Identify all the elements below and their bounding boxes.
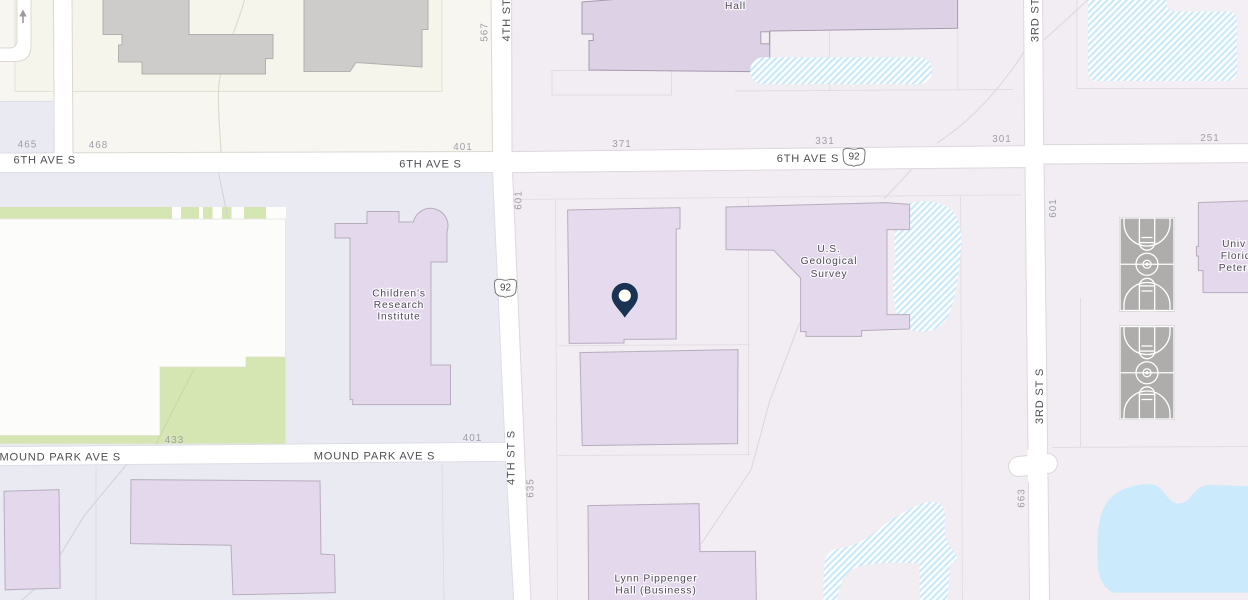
svg-text:U.S.: U.S. (817, 244, 840, 255)
svg-text:3RD ST S: 3RD ST S (1030, 0, 1042, 42)
svg-text:Children’s: Children’s (372, 289, 426, 300)
svg-text:663: 663 (1017, 488, 1028, 507)
svg-text:433: 433 (165, 435, 184, 446)
svg-text:92: 92 (500, 283, 512, 294)
svg-text:331: 331 (815, 136, 834, 147)
svg-text:92: 92 (848, 152, 860, 163)
svg-text:567: 567 (480, 22, 491, 41)
svg-text:4TH ST S: 4TH ST S (501, 0, 513, 41)
svg-text:635: 635 (526, 478, 537, 497)
svg-text:601: 601 (1048, 198, 1059, 217)
svg-text:6TH AVE S: 6TH AVE S (399, 158, 461, 170)
svg-text:Univ: Univ (1222, 239, 1246, 250)
svg-text:301: 301 (992, 134, 1011, 145)
svg-text:6TH AVE S: 6TH AVE S (14, 155, 76, 167)
svg-text:6TH AVE S: 6TH AVE S (777, 153, 839, 165)
svg-text:468: 468 (89, 140, 108, 151)
svg-text:465: 465 (18, 140, 37, 151)
svg-text:Lynn Pippenger: Lynn Pippenger (615, 574, 698, 585)
svg-text:Survey: Survey (811, 269, 848, 280)
svg-text:251: 251 (1200, 133, 1219, 144)
svg-text:401: 401 (463, 433, 482, 444)
svg-text:Hall (Business): Hall (Business) (615, 586, 696, 597)
svg-text:3RD ST S: 3RD ST S (1034, 368, 1046, 424)
svg-text:Geological: Geological (801, 256, 858, 267)
svg-text:Institute: Institute (377, 312, 420, 323)
svg-text:4TH ST S: 4TH ST S (506, 430, 518, 485)
svg-text:Peters: Peters (1219, 263, 1248, 274)
svg-text:401: 401 (453, 142, 472, 153)
svg-text:Research: Research (374, 300, 424, 311)
svg-text:MOUND PARK AVE S: MOUND PARK AVE S (314, 450, 436, 462)
svg-text:371: 371 (612, 139, 631, 150)
svg-text:Hall: Hall (725, 1, 746, 12)
svg-text:MOUND PARK AVE S: MOUND PARK AVE S (0, 452, 121, 464)
svg-text:Florid: Florid (1221, 251, 1248, 262)
svg-text:601: 601 (514, 190, 525, 209)
